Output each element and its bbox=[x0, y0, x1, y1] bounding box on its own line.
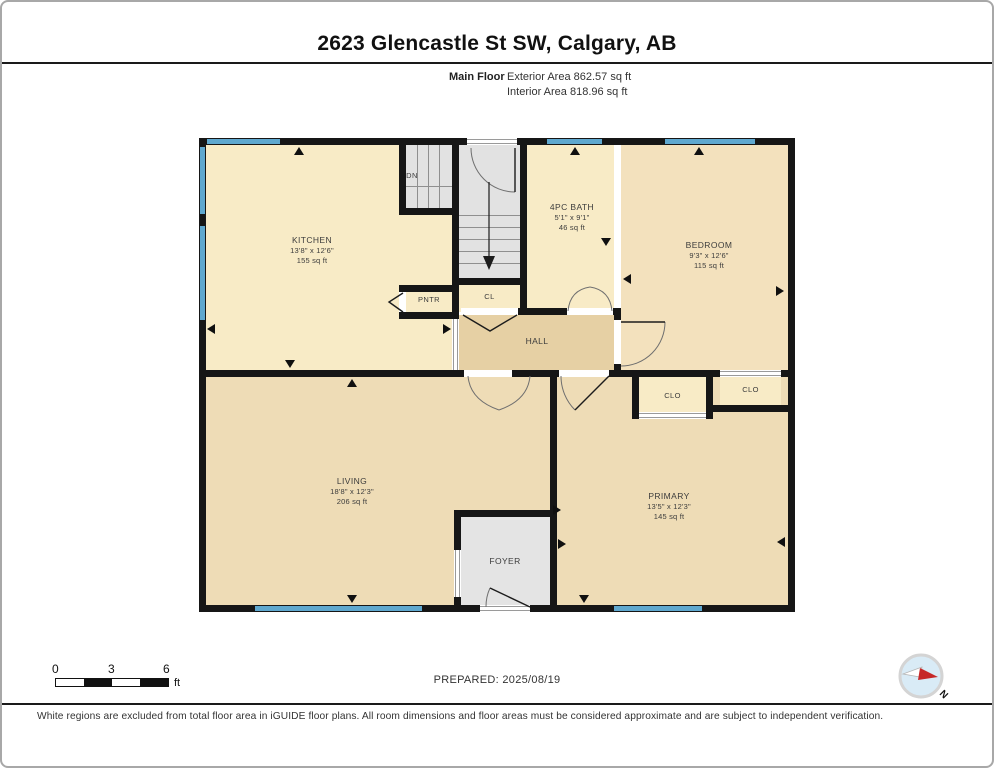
room-dims: 13'5" x 12'3" bbox=[609, 502, 729, 512]
wall-arrow-up bbox=[694, 147, 704, 155]
room-area: 46 sq ft bbox=[522, 223, 622, 233]
wall-arrow-up bbox=[294, 147, 304, 155]
footer-divider bbox=[2, 703, 994, 705]
room-label-kitchen: KITCHEN 13'8" x 12'6" 155 sq ft bbox=[252, 235, 372, 266]
room-label-living: LIVING 18'8" x 12'3" 206 sq ft bbox=[292, 476, 412, 507]
opening-line bbox=[467, 139, 517, 140]
wall-arrow-down bbox=[601, 238, 611, 246]
room-name: BEDROOM bbox=[649, 240, 769, 251]
room-label-cl: CL bbox=[459, 292, 520, 302]
room-name: LIVING bbox=[292, 476, 412, 487]
wall-arrow-right bbox=[776, 286, 784, 296]
opening-line bbox=[720, 375, 781, 376]
wall-arrow-up bbox=[347, 379, 357, 387]
wall-foyer-top bbox=[454, 510, 557, 517]
room-label-clo-bedroom: CLO bbox=[720, 385, 781, 395]
bedroom-door-gap bbox=[614, 320, 621, 364]
wall-under-stairs bbox=[399, 208, 459, 215]
opening-line bbox=[453, 319, 454, 370]
wall-arrow-right bbox=[553, 505, 561, 515]
room-label-foyer: FOYER bbox=[465, 556, 545, 567]
room-label-bedroom: BEDROOM 9'3" x 12'6" 115 sq ft bbox=[649, 240, 769, 271]
window-kitchen-left-2 bbox=[200, 226, 205, 320]
opening-line bbox=[459, 550, 460, 597]
room-dims: 9'3" x 12'6" bbox=[649, 251, 769, 261]
window-primary-bottom bbox=[614, 606, 702, 611]
wall-foyer-left-upper bbox=[454, 510, 461, 550]
wall-pantry-bottom bbox=[399, 312, 459, 319]
wall-clo-left bbox=[632, 370, 639, 419]
room-area: 206 sq ft bbox=[292, 497, 412, 507]
wall-arrow-left bbox=[777, 537, 785, 547]
room-name: PRIMARY bbox=[609, 491, 729, 502]
window-living-bottom bbox=[255, 606, 422, 611]
stair-tread bbox=[459, 251, 520, 252]
wall-arrow-right bbox=[443, 324, 451, 334]
room-label-pntr: PNTR bbox=[406, 295, 452, 305]
floor-plan bbox=[2, 2, 994, 768]
wall-arrow-down bbox=[579, 595, 589, 603]
wall-arrow-left bbox=[207, 324, 215, 334]
room-dims: 13'8" x 12'6" bbox=[252, 246, 372, 256]
room-name: HALL bbox=[497, 336, 577, 347]
room-name: 4PC BATH bbox=[522, 202, 622, 213]
window-bedroom-top bbox=[665, 139, 755, 144]
stair-tread bbox=[406, 186, 452, 187]
wall-arrow-right bbox=[558, 539, 566, 549]
stair-tread bbox=[459, 263, 520, 264]
wall-arrow-down bbox=[347, 595, 357, 603]
opening-line bbox=[455, 550, 456, 597]
wall-stairs-cl bbox=[459, 278, 527, 285]
stair-tread bbox=[459, 227, 520, 228]
opening-line bbox=[480, 610, 530, 611]
opening-line bbox=[457, 319, 458, 370]
room-name: PNTR bbox=[418, 295, 440, 304]
pantry-door-gap bbox=[399, 292, 406, 312]
floorplan-page: 2623 Glencastle St SW, Calgary, AB Main … bbox=[0, 0, 994, 768]
room-dims: 18'8" x 12'3" bbox=[292, 487, 412, 497]
stair-tread bbox=[428, 145, 429, 208]
stairs-dn-label: DN bbox=[400, 171, 424, 181]
room-name: CL bbox=[484, 292, 494, 301]
opening-line bbox=[467, 143, 517, 144]
window-kitchen-left-1 bbox=[200, 147, 205, 214]
wall-pantry-top bbox=[399, 285, 459, 292]
room-name: CLO bbox=[742, 385, 759, 394]
disclaimer-text: White regions are excluded from total fl… bbox=[37, 711, 977, 722]
prepared-date: PREPARED: 2025/08/19 bbox=[2, 674, 992, 686]
wall-bath-hall-left bbox=[518, 308, 567, 315]
primary-door-gap bbox=[559, 370, 609, 377]
wall-arrow-left bbox=[623, 274, 631, 284]
opening-line bbox=[639, 417, 706, 418]
room-label-bath: 4PC BATH 5'1" x 9'1" 46 sq ft bbox=[522, 202, 622, 233]
wall-arrow-up bbox=[570, 147, 580, 155]
room-area: 145 sq ft bbox=[609, 512, 729, 522]
room-area: 155 sq ft bbox=[252, 256, 372, 266]
room-label-primary: PRIMARY 13'5" x 12'3" 145 sq ft bbox=[609, 491, 729, 522]
wall-stairs-divider bbox=[452, 145, 459, 215]
stair-tread bbox=[459, 239, 520, 240]
room-name: CLO bbox=[664, 391, 681, 400]
wall-clo-bottom bbox=[713, 405, 795, 412]
wall-clo-divider bbox=[706, 370, 713, 419]
room-dims: 5'1" x 9'1" bbox=[522, 213, 622, 223]
living-door-gap bbox=[464, 370, 512, 377]
opening-line bbox=[639, 413, 706, 414]
room-name: FOYER bbox=[465, 556, 545, 567]
window-bath-top bbox=[547, 139, 602, 144]
room-label-clo-primary: CLO bbox=[639, 391, 706, 401]
window-kitchen-top bbox=[207, 139, 280, 144]
wall-arrow-down bbox=[285, 360, 295, 368]
bath-door-gap bbox=[567, 308, 613, 315]
wall-kitchen-hall bbox=[452, 215, 459, 319]
wall-living-primary bbox=[550, 375, 557, 605]
stairs-direction: DN bbox=[406, 171, 418, 180]
opening-line bbox=[720, 371, 781, 372]
opening-line bbox=[480, 606, 530, 607]
stairs-lower-run bbox=[459, 145, 520, 278]
room-area: 115 sq ft bbox=[649, 261, 769, 271]
wall-foyer-left-lower bbox=[454, 597, 461, 605]
stair-tread bbox=[439, 145, 440, 208]
stair-tread bbox=[459, 215, 520, 216]
room-name: KITCHEN bbox=[252, 235, 372, 246]
cl-door-gap bbox=[461, 308, 518, 315]
room-label-hall: HALL bbox=[497, 336, 577, 347]
